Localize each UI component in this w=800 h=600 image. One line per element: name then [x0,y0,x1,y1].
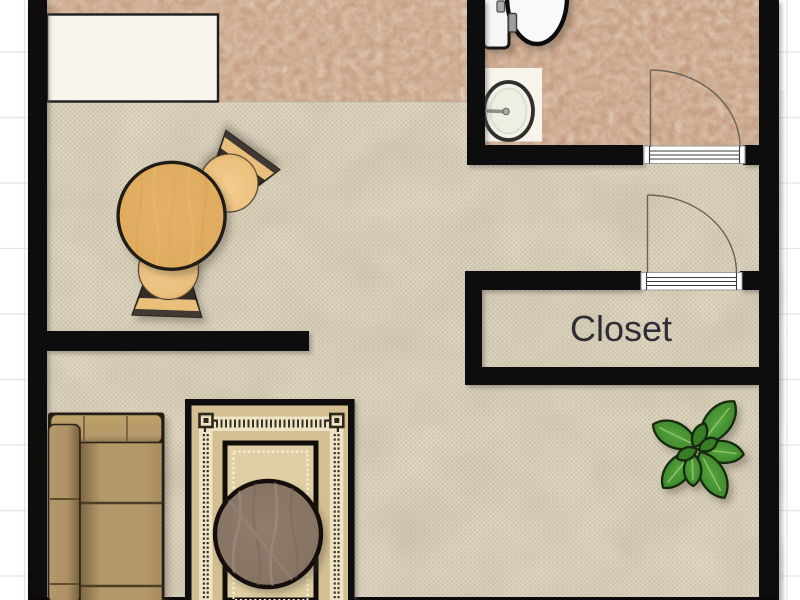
svg-text:Closet: Closet [570,308,672,349]
